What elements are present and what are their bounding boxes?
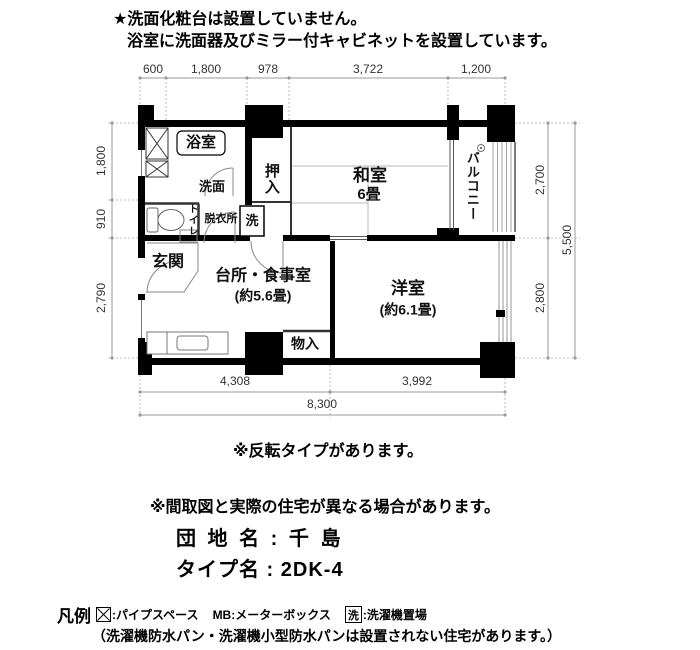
pipe-space-legend-icon bbox=[96, 607, 111, 622]
room-label-dressing-room: 脱衣所 bbox=[205, 214, 238, 226]
estate-name-label: 団 地 名 : 千 島 bbox=[176, 522, 343, 551]
dim-left-2790: 2,790 bbox=[94, 283, 108, 313]
dim-top-3722: 3,722 bbox=[353, 62, 383, 76]
room-size-kitchen-dining: (約5.6畳) bbox=[235, 289, 292, 304]
room-label-toilet: トイレ bbox=[186, 204, 197, 237]
pipe-space-icon bbox=[146, 128, 168, 177]
dim-top-600: 600 bbox=[143, 62, 163, 76]
balcony-railing bbox=[493, 142, 515, 232]
room-size-japanese-room: 6畳 bbox=[357, 187, 380, 203]
dim-left-1800: 1,800 bbox=[94, 146, 108, 176]
legend-meter-box-label: MB:メーターボックス bbox=[213, 606, 331, 623]
dim-right-2800: 2,800 bbox=[533, 283, 547, 313]
room-label-closet: 押入 bbox=[263, 163, 279, 195]
room-label-kitchen-dining: 台所・食事室 bbox=[215, 269, 311, 286]
legend-item-laundry: 洗 :洗濯機置場 bbox=[345, 606, 427, 623]
legend-item-meter-box: MB:メーターボックス bbox=[213, 606, 331, 623]
toilet-fixture-icon bbox=[147, 208, 184, 232]
legend-laundry-label: :洗濯機置場 bbox=[363, 606, 427, 623]
sliding-door bbox=[330, 237, 367, 240]
room-label-storage: 物入 bbox=[291, 337, 319, 352]
room-label-bathroom: 浴室 bbox=[186, 135, 216, 151]
room-label-washbasin: 洗面 bbox=[199, 180, 225, 194]
dim-bottom-total-8300: 8,300 bbox=[307, 397, 337, 411]
remark-line-1: ※反転タイプがあります。 bbox=[233, 437, 423, 461]
type-name-label: タイプ名 : 2DK-4 bbox=[176, 553, 344, 582]
room-label-western-room: 洋室 bbox=[391, 280, 425, 298]
legend-item-pipe-space: :パイプスペース bbox=[96, 606, 199, 623]
room-label-balcony: バルコニー bbox=[465, 151, 479, 221]
dim-top-1800: 1,800 bbox=[191, 62, 221, 76]
dim-right-2700: 2,700 bbox=[533, 165, 547, 195]
dim-left-910: 910 bbox=[94, 209, 108, 229]
dim-right-total-5500: 5,500 bbox=[560, 225, 574, 255]
floor-plan-page: ★洗面化粧台は設置していません。 浴室に洗面器及びミラー付キャビネットを設置して… bbox=[0, 0, 700, 650]
kitchen-counter bbox=[147, 332, 228, 354]
dim-bottom-4308: 4,308 bbox=[220, 374, 250, 388]
room-size-western-room: (約6.1畳) bbox=[380, 303, 437, 318]
legend: :パイプスペース MB:メーターボックス 洗 :洗濯機置場 bbox=[96, 606, 427, 623]
room-label-entrance: 玄関 bbox=[152, 255, 184, 272]
laundry-symbol-label: 洗 bbox=[245, 214, 258, 228]
dim-bottom-3992: 3,992 bbox=[402, 374, 432, 388]
balcony-glass-door bbox=[450, 140, 454, 230]
dim-top-1200: 1,200 bbox=[461, 62, 491, 76]
laundry-legend-icon: 洗 bbox=[345, 606, 362, 623]
legend-pipe-space-label: :パイプスペース bbox=[112, 606, 199, 623]
legend-title: 凡例 bbox=[57, 602, 91, 627]
western-room-window bbox=[496, 241, 511, 342]
legend-note: （洗濯機防水パン・洗濯機小型防水パンは設置されない住宅があります。） bbox=[92, 626, 561, 646]
remark-line-2: ※間取図と実際の住宅が異なる場合があります。 bbox=[150, 493, 500, 517]
dim-top-978: 978 bbox=[258, 62, 278, 76]
floor-plan-drawing bbox=[0, 0, 700, 650]
room-label-japanese-room: 和室 bbox=[353, 167, 387, 185]
